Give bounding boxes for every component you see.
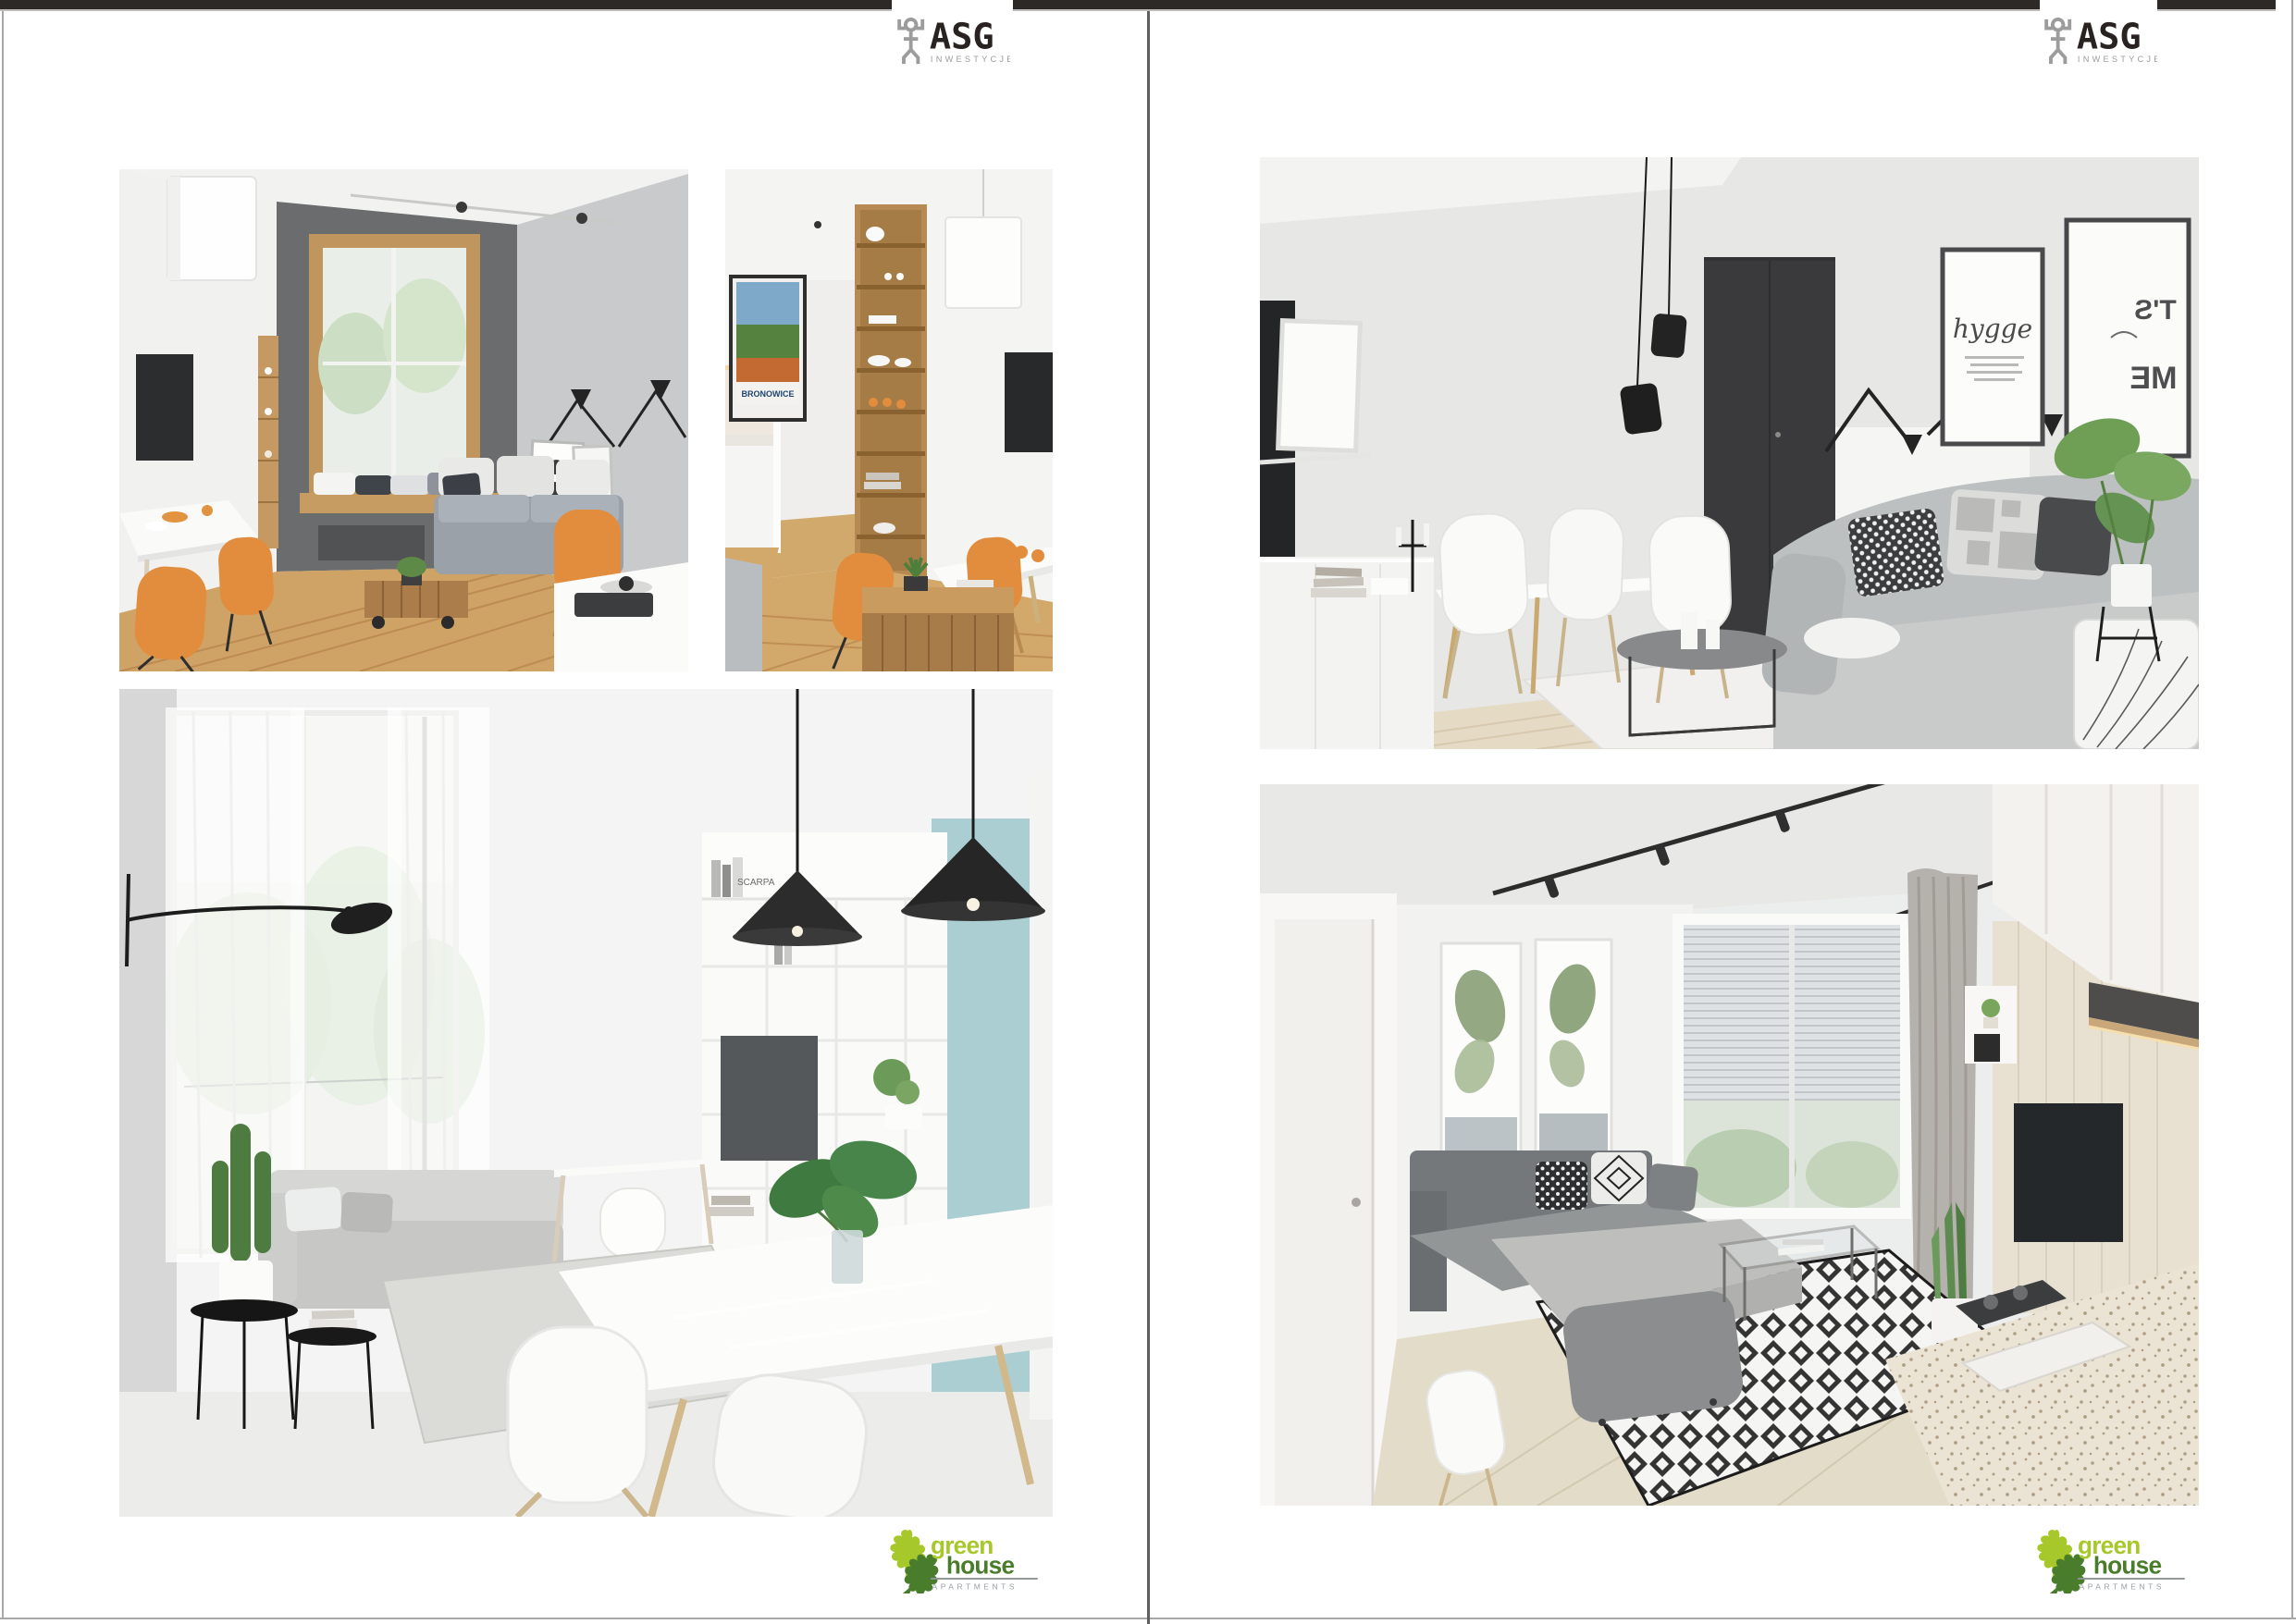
greenhouse-word2: house: [2093, 1551, 2162, 1579]
photo-living-room-teal: SCARPA: [119, 689, 1053, 1517]
mirror-poster-line1: T'S: [2134, 295, 2176, 326]
photo-living-room-window-seat: [119, 169, 688, 671]
wall-shelf: [258, 336, 278, 548]
asg-logo-text: ASG: [2077, 17, 2142, 58]
asg-figure-icon: [2046, 19, 2069, 64]
hygge-poster: hygge: [1943, 250, 2043, 444]
center-page-divider: [1147, 0, 1150, 1624]
greenhouse-divider-line: [2078, 1578, 2185, 1580]
open-shelf: [1965, 986, 2017, 1064]
mirrored-text-poster: T'S ME: [2067, 220, 2189, 456]
window: [309, 234, 480, 493]
tv: [1005, 352, 1053, 452]
wood-shelf-column: [855, 204, 927, 576]
hygge-poster-text: hygge: [1953, 314, 2032, 344]
brochure-spread: ASG INWESTYCJE ASG INWESTYCJE: [0, 0, 2296, 1624]
left-page-border: [2, 0, 4, 1618]
tv: [136, 354, 193, 461]
top-bar-middle: [1013, 0, 2040, 11]
mirror-poster-line2: ME: [2130, 361, 2178, 396]
greenhouse-word2: house: [946, 1551, 1015, 1579]
tv: [721, 1036, 818, 1161]
pouf: [1561, 1288, 1746, 1426]
greenhouse-logo-right: green house APARTMENTS: [2033, 1528, 2191, 1593]
photo-living-room-corner-sofa: [1260, 784, 2199, 1506]
asg-logo-subtitle: INWESTYCJE: [931, 55, 1010, 64]
asg-logo-left: ASG INWESTYCJE: [895, 17, 1010, 67]
door: [1260, 893, 1397, 1506]
asg-figure-icon: [899, 19, 922, 64]
top-bar-right: [2157, 0, 2276, 11]
right-page-border: [2291, 0, 2293, 1618]
book-spine-text: SCARPA: [737, 878, 775, 888]
photo-living-dining-kitchen: hygge T'S ME: [1260, 157, 2199, 749]
sofa-arm: [725, 558, 762, 671]
greenhouse-divider-line: [931, 1578, 1038, 1580]
greenhouse-subtitle: APARTMENTS: [2080, 1581, 2166, 1591]
tv: [2014, 1103, 2123, 1242]
top-bar-left: [0, 0, 892, 11]
asg-logo-text: ASG: [930, 17, 994, 58]
asg-logo-right: ASG INWESTYCJE: [2043, 17, 2157, 67]
bronowice-poster-text: BRONOWICE: [742, 389, 795, 399]
bronowice-poster: BRONOWICE: [731, 277, 805, 420]
greenhouse-subtitle: APARTMENTS: [932, 1581, 1018, 1591]
greenhouse-logo-left: green house APARTMENTS: [886, 1528, 1043, 1593]
window: [1673, 914, 1911, 1219]
photo-kitchen-shelf-dining: BRONOWICE: [725, 169, 1053, 671]
pendant-lamp: [167, 177, 256, 280]
asg-logo-subtitle: INWESTYCJE: [2078, 55, 2157, 64]
